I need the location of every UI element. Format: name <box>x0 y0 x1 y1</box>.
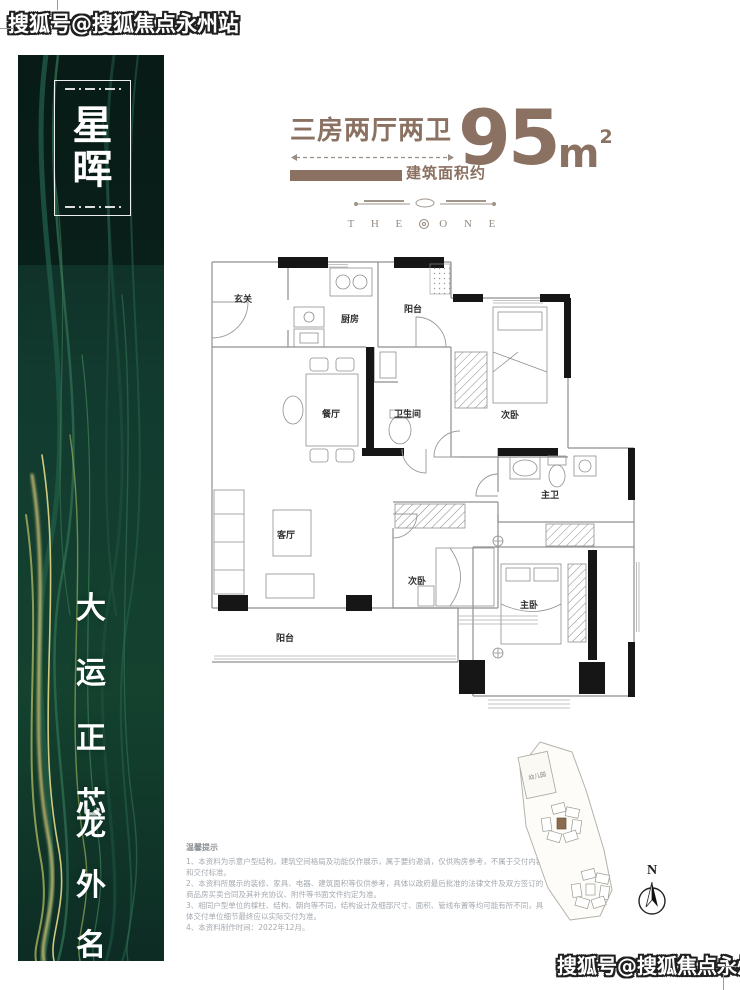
room-label-balcony-bottom: 阳台 <box>276 632 294 644</box>
note-item: 1、本资料为示意户型结构，建筑空间格局及功能仅作展示，属于要约邀请，仅供购房参考… <box>186 856 544 878</box>
badge-ornament-top <box>65 88 121 90</box>
note-item: 2、本资料所展示的装修、家具、电器、建筑面积等仅供参考，具体以政府最后批准的法律… <box>186 878 544 900</box>
project-name-badge: 星 晖 <box>54 80 131 216</box>
unit-header: 三房两厅两卫 建筑面积约 95 m 2 <box>290 110 590 195</box>
highlighted-unit <box>557 818 566 829</box>
project-name-char: 星 <box>73 104 113 148</box>
slogan-line-1: 大 运 正 芯 <box>18 583 164 822</box>
slogan-line-2: 龙 外 名 门 <box>18 800 164 961</box>
slogan-char: 龙 <box>76 800 106 844</box>
room-label-living: 客厅 <box>276 529 295 541</box>
room-label-entry: 玄关 <box>234 293 252 305</box>
accent-bar <box>290 170 402 181</box>
room-label-master-bath: 主卫 <box>541 489 559 501</box>
slogan-char: 正 <box>76 713 106 757</box>
crop-mark <box>719 966 738 967</box>
furniture <box>214 268 596 658</box>
badge-ornament-bottom <box>65 206 121 208</box>
note-item: 4、本资料制作时间：2022年12月。 <box>186 922 544 933</box>
north-compass: N <box>639 863 665 914</box>
room-label-kitchen: 厨房 <box>341 313 359 325</box>
slogan-char: 名 <box>76 920 106 961</box>
brand-medallion-icon <box>419 219 429 229</box>
room-label-dining: 餐厅 <box>321 408 340 420</box>
watermark-top-left: 搜狐号@搜狐焦点永州站 <box>8 8 239 38</box>
compass-needle-left <box>646 882 652 907</box>
crop-mark <box>57 0 58 10</box>
slogan-char: 大 <box>76 583 106 627</box>
room-label-bedroom3: 次卧 <box>408 575 426 587</box>
slogan-char: 外 <box>76 860 106 904</box>
site-plan: 幼儿园 N <box>500 738 680 936</box>
north-label: N <box>647 863 657 878</box>
dashed-arrow-rule <box>290 153 455 162</box>
project-name-char: 晖 <box>73 148 113 192</box>
disclaimer-notes: 温馨提示 1、本资料为示意户型结构，建筑空间格局及功能仅作展示，属于要约邀请，仅… <box>186 842 544 933</box>
room-label-balcony-top: 阳台 <box>404 303 422 315</box>
watermark-bottom-right: 搜狐号@搜狐焦点永州站 <box>557 950 740 979</box>
area-exponent: 2 <box>599 128 612 147</box>
brand-one: O N E <box>439 218 502 230</box>
divider-ornament <box>350 198 500 210</box>
sidebar-art-panel: 星 晖 大 运 正 芯 龙 外 名 门 <box>18 55 164 961</box>
ac-platform <box>430 264 450 294</box>
brand-the: T H E <box>348 218 410 230</box>
note-item: 3、相同户型单位的樑柱、结构、朝向等不同，结构设计及细部尺寸、面积、管线布置等均… <box>186 900 544 922</box>
room-label-bathroom: 卫生间 <box>394 408 421 420</box>
crop-mark <box>0 28 14 29</box>
area-unit: m <box>558 134 600 174</box>
room-label-bedroom2: 次卧 <box>501 409 519 421</box>
area-number: 95 <box>458 100 558 176</box>
brand-divider: T H E O N E <box>330 195 520 230</box>
floorplan-poster: 星 晖 大 运 正 芯 龙 外 名 门 三房两厅两卫 建筑面积约 <box>0 0 740 990</box>
crop-mark <box>723 974 724 990</box>
notes-title: 温馨提示 <box>186 842 544 853</box>
brand-wordmark: T H E O N E <box>330 218 520 230</box>
room-label-master-bedroom: 主卧 <box>520 599 538 611</box>
floorplan-drawing: 玄关 厨房 阳台 餐厅 卫生间 次卧 客厅 次卧 主卫 主卧 阳台 <box>198 252 643 717</box>
compass-needle-right <box>652 882 658 907</box>
slogan-char: 运 <box>76 648 106 692</box>
area-figure: 95 m 2 <box>458 100 613 176</box>
